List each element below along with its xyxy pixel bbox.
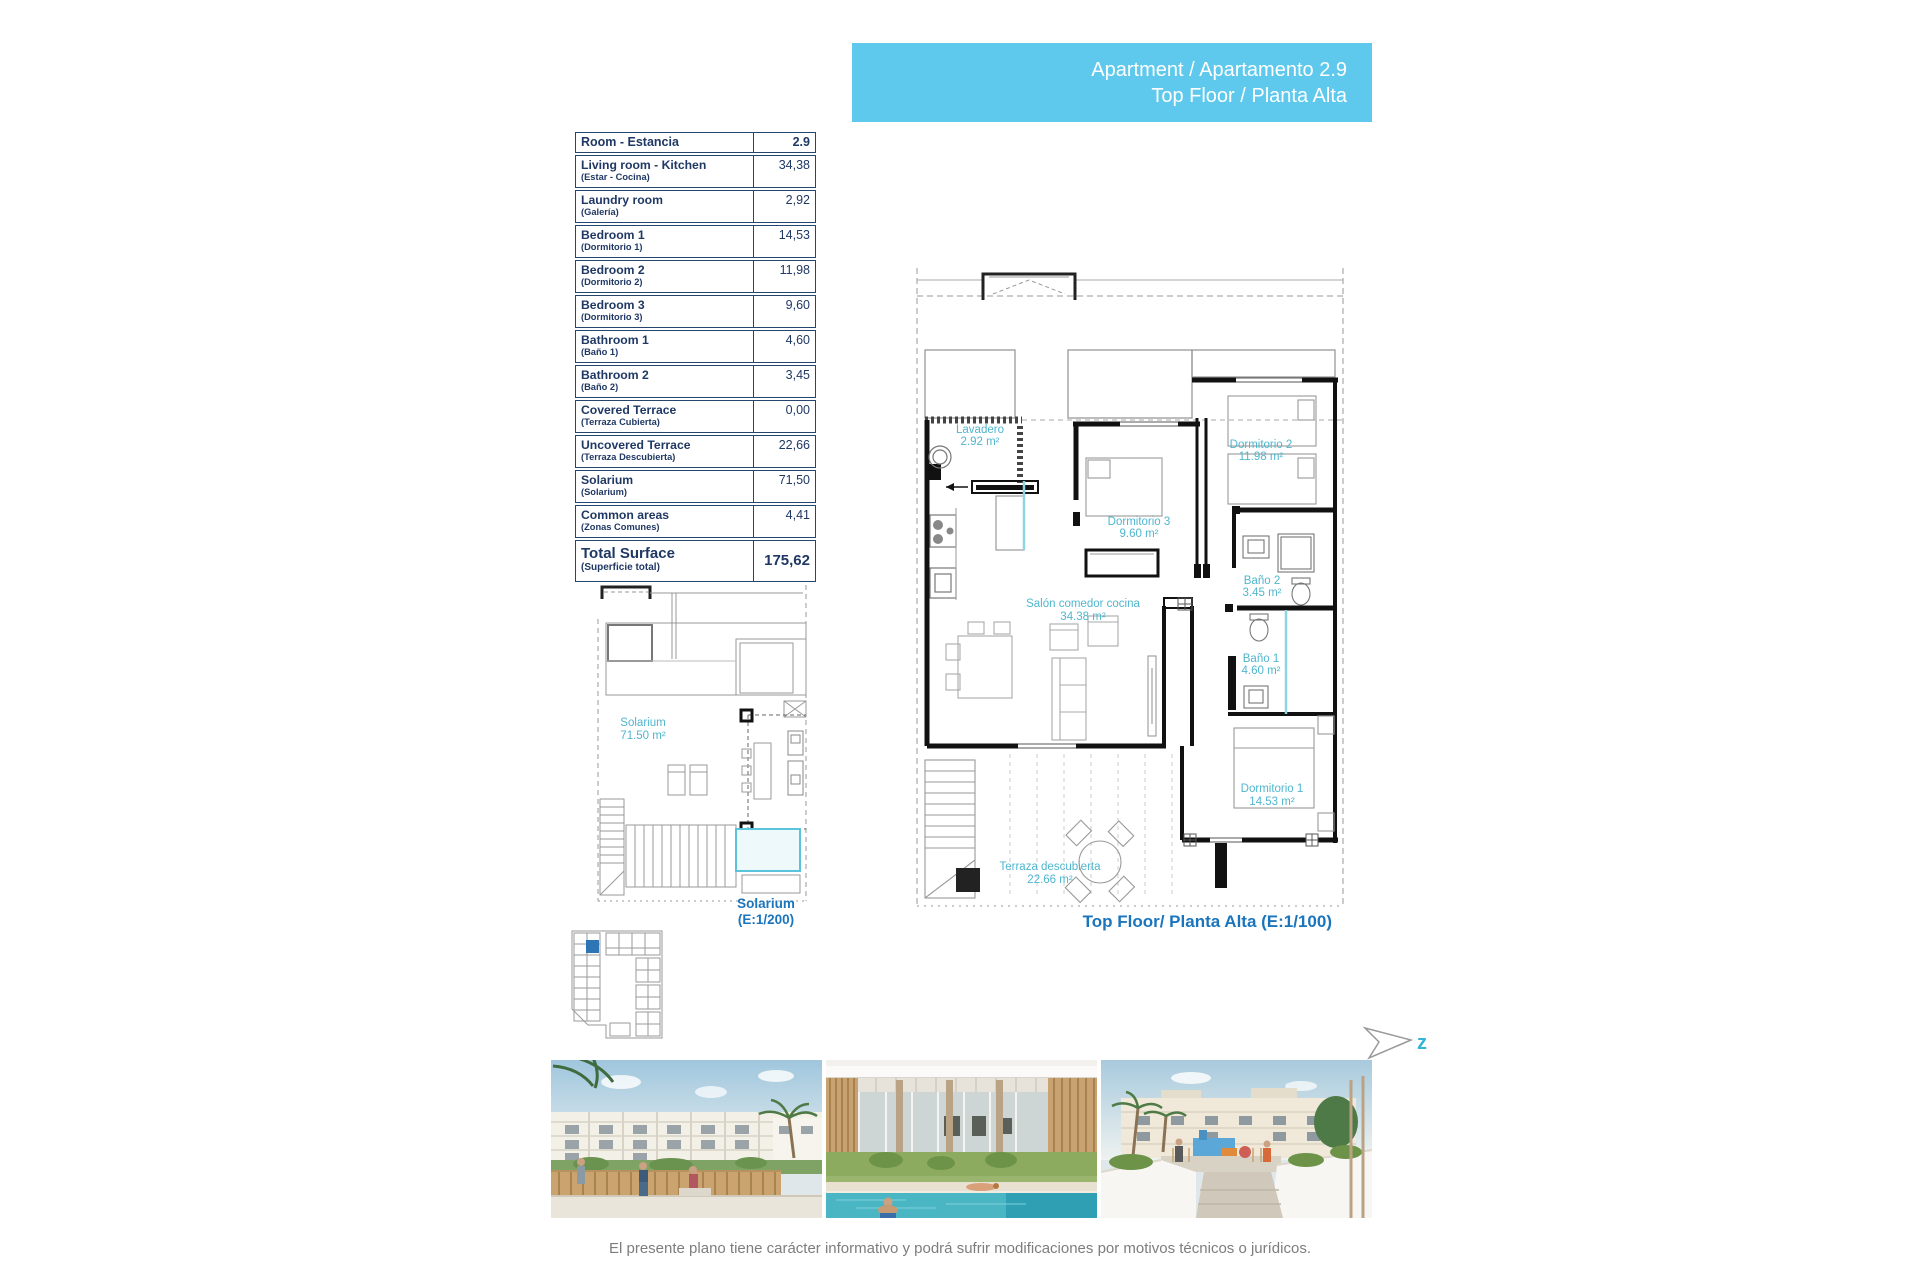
north-arrow-letter: z	[1417, 1032, 1427, 1054]
room-name-en: Solarium	[581, 473, 749, 487]
north-arrow: z	[1355, 1018, 1435, 1066]
room-name-es: (Zonas Comunes)	[581, 522, 749, 533]
room-name-es: (Dormitorio 2)	[581, 277, 749, 288]
solarium-floor-plan: Solarium 71.50 m²	[588, 583, 838, 948]
room-name-en: Living room - Kitchen	[581, 158, 749, 172]
label-terraza: Terraza descubierta	[1000, 861, 1102, 873]
table-total-row: Total Surface(Superficie total) 175,62	[575, 540, 816, 582]
area-terraza: 22.66 m²	[1027, 874, 1073, 886]
table-row: Bathroom 1(Baño 1) 4,60	[575, 330, 816, 363]
photo-pool-pergola	[826, 1060, 1097, 1218]
title-banner: Apartment / Apartamento 2.9 Top Floor / …	[852, 43, 1372, 122]
room-name-es: (Terraza Descubierta)	[581, 452, 749, 463]
table-header-unit: 2.9	[753, 133, 815, 152]
site-key-plan	[566, 928, 696, 1058]
room-name-en: Bathroom 2	[581, 368, 749, 382]
table-row: Uncovered Terrace(Terraza Descubierta) 2…	[575, 435, 816, 468]
table-header-room: Room - Estancia	[576, 133, 753, 152]
area-lavadero: 2.92 m²	[961, 436, 1000, 448]
room-name-en: Bedroom 2	[581, 263, 749, 277]
table-row: Bathroom 2(Baño 2) 3,45	[575, 365, 816, 398]
area-dormitorio1: 14.53 m²	[1249, 796, 1295, 808]
photo-street-view	[551, 1060, 822, 1218]
label-dormitorio1: Dormitorio 1	[1241, 783, 1304, 795]
room-area-value: 22,66	[753, 436, 815, 467]
room-name-en: Uncovered Terrace	[581, 438, 749, 452]
room-area-value: 14,53	[753, 226, 815, 257]
room-name-en: Laundry room	[581, 193, 749, 207]
room-area-value: 4,41	[753, 506, 815, 537]
solarium-plan-caption: Solarium (E:1/200)	[686, 896, 846, 928]
label-bano2: Baño 2	[1244, 575, 1280, 587]
label-dormitorio2: Dormitorio 2	[1230, 439, 1293, 451]
room-name-es: (Baño 1)	[581, 347, 749, 358]
room-area-value: 3,45	[753, 366, 815, 397]
total-label-es: (Superficie total)	[581, 562, 749, 573]
solarium-caption-line1: Solarium	[686, 896, 846, 912]
room-area-value: 9,60	[753, 296, 815, 327]
room-name-en: Bedroom 1	[581, 228, 749, 242]
room-area-value: 0,00	[753, 401, 815, 432]
main-floor-plan: Lavadero 2.92 m² Dormitorio 3 9.60 m² Do…	[910, 268, 1350, 913]
room-name-es: (Estar - Cocina)	[581, 172, 749, 183]
room-areas-table: Room - Estancia 2.9 Living room - Kitche…	[575, 132, 816, 582]
total-label-en: Total Surface	[581, 543, 749, 562]
solarium-caption-line2: (E:1/200)	[686, 912, 846, 928]
label-lavadero: Lavadero	[956, 424, 1004, 436]
area-dormitorio3: 9.60 m²	[1120, 528, 1159, 540]
area-bano2: 3.45 m²	[1243, 587, 1282, 599]
table-row: Bedroom 3(Dormitorio 3) 9,60	[575, 295, 816, 328]
disclaimer-text: El presente plano tiene carácter informa…	[480, 1240, 1440, 1257]
total-value: 175,62	[753, 541, 815, 581]
room-name-es: (Dormitorio 1)	[581, 242, 749, 253]
room-name-en: Bathroom 1	[581, 333, 749, 347]
room-area-value: 11,98	[753, 261, 815, 292]
table-row: Laundry room(Galería) 2,92	[575, 190, 816, 223]
banner-line-floor: Top Floor / Planta Alta	[852, 83, 1347, 109]
main-plan-caption: Top Floor/ Planta Alta (E:1/100)	[1000, 912, 1332, 932]
solarium-room-area: 71.50 m²	[620, 730, 666, 742]
table-row: Bedroom 1(Dormitorio 1) 14,53	[575, 225, 816, 258]
table-row: Solarium(Solarium) 71,50	[575, 470, 816, 503]
render-photos	[551, 1060, 1376, 1218]
label-salon: Salón comedor cocina	[1026, 598, 1140, 610]
banner-line-apartment: Apartment / Apartamento 2.9	[852, 57, 1347, 83]
room-name-en: Bedroom 3	[581, 298, 749, 312]
area-salon: 34.38 m²	[1060, 611, 1106, 623]
label-bano1: Baño 1	[1243, 653, 1279, 665]
room-name-en: Covered Terrace	[581, 403, 749, 417]
area-bano1: 4.60 m²	[1242, 665, 1281, 677]
photo-playground-view	[1101, 1060, 1372, 1218]
table-row: Living room - Kitchen(Estar - Cocina) 34…	[575, 155, 816, 188]
room-name-es: (Baño 2)	[581, 382, 749, 393]
room-area-value: 71,50	[753, 471, 815, 502]
plan-sheet: Apartment / Apartamento 2.9 Top Floor / …	[0, 0, 1920, 1280]
room-area-value: 34,38	[753, 156, 815, 187]
room-name-es: (Solarium)	[581, 487, 749, 498]
room-name-es: (Dormitorio 3)	[581, 312, 749, 323]
table-header-row: Room - Estancia 2.9	[575, 132, 816, 153]
table-row: Bedroom 2(Dormitorio 2) 11,98	[575, 260, 816, 293]
keyplan-highlighted-unit	[586, 940, 599, 953]
north-arrow-icon	[1365, 1028, 1411, 1058]
table-row: Covered Terrace(Terraza Cubierta) 0,00	[575, 400, 816, 433]
label-dormitorio3: Dormitorio 3	[1108, 516, 1171, 528]
room-name-en: Common areas	[581, 508, 749, 522]
area-dormitorio2: 11.98 m²	[1239, 451, 1284, 463]
room-name-es: (Galería)	[581, 207, 749, 218]
room-area-value: 4,60	[753, 331, 815, 362]
solarium-room-label: Solarium	[620, 717, 665, 729]
room-area-value: 2,92	[753, 191, 815, 222]
room-name-es: (Terraza Cubierta)	[581, 417, 749, 428]
table-row: Common areas(Zonas Comunes) 4,41	[575, 505, 816, 538]
